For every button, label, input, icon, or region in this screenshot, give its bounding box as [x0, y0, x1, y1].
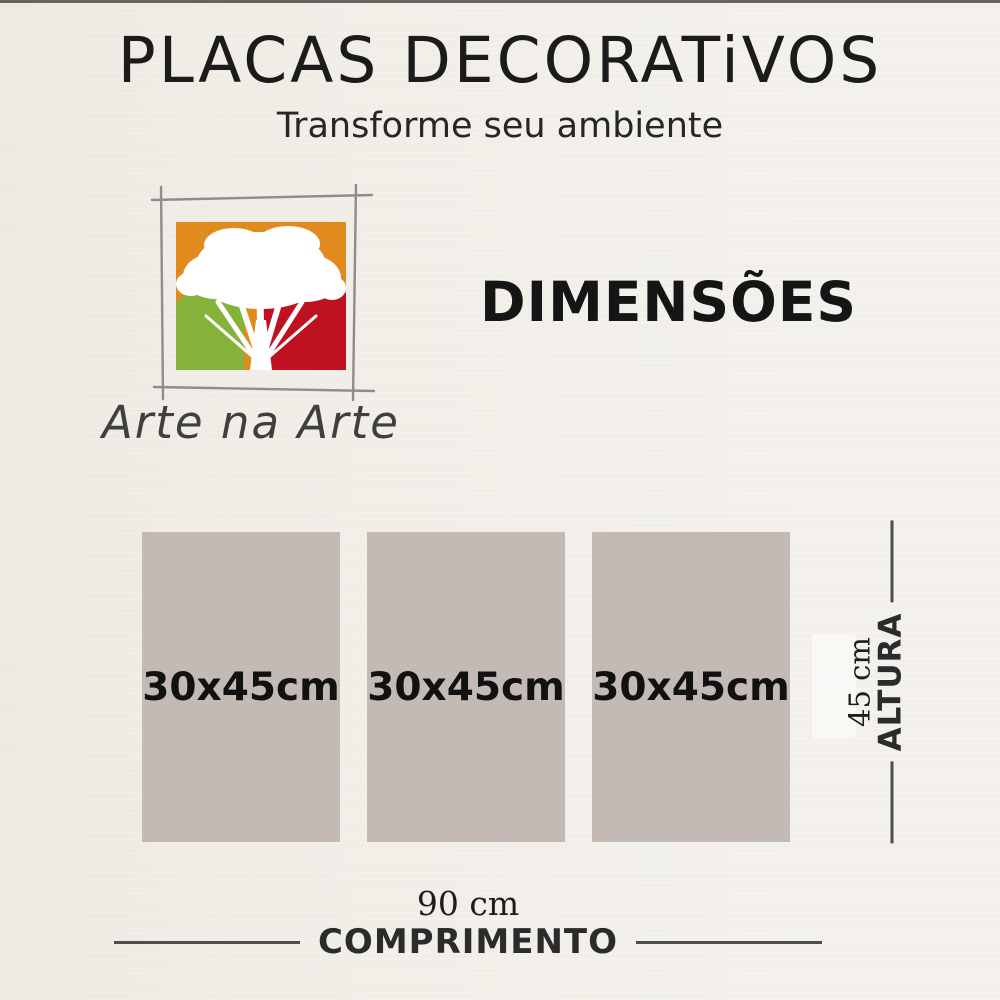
plaque-size-label: 30x45cm	[592, 665, 789, 710]
height-dimension: 45 cm ALTURA	[845, 521, 908, 844]
dimension-line	[636, 941, 822, 944]
product-dimensions-infographic: PLACAS DECORATiVOS Transforme seu ambien…	[0, 0, 1000, 1000]
plaque: 30x45cm	[367, 532, 565, 842]
plaque: 30x45cm	[142, 532, 340, 842]
length-label: COMPRIMENTO	[318, 924, 618, 961]
plaque-size-label: 30x45cm	[142, 665, 339, 710]
page-title: PLACAS DECORATiVOS	[0, 24, 1000, 97]
plaque: 30x45cm	[592, 532, 790, 842]
height-value: 45 cm	[845, 637, 875, 727]
top-edge-line	[0, 0, 1000, 3]
plaques-row: 30x45cm 30x45cm 30x45cm	[142, 532, 790, 842]
page-subtitle: Transforme seu ambiente	[0, 106, 1000, 146]
tree-logo-icon	[146, 184, 378, 402]
dimension-line	[890, 761, 893, 843]
arte-na-arte-logo	[146, 184, 378, 402]
plaque-size-label: 30x45cm	[367, 665, 564, 710]
dimension-line	[890, 521, 893, 603]
length-dimension: 90 cm COMPRIMENTO	[114, 886, 822, 962]
height-label: ALTURA	[875, 613, 908, 752]
length-value: 90 cm	[417, 886, 519, 922]
dimension-line	[114, 941, 300, 944]
brand-name: Arte na Arte	[102, 396, 400, 449]
dimensions-heading: DIMENSÕES	[480, 270, 857, 334]
